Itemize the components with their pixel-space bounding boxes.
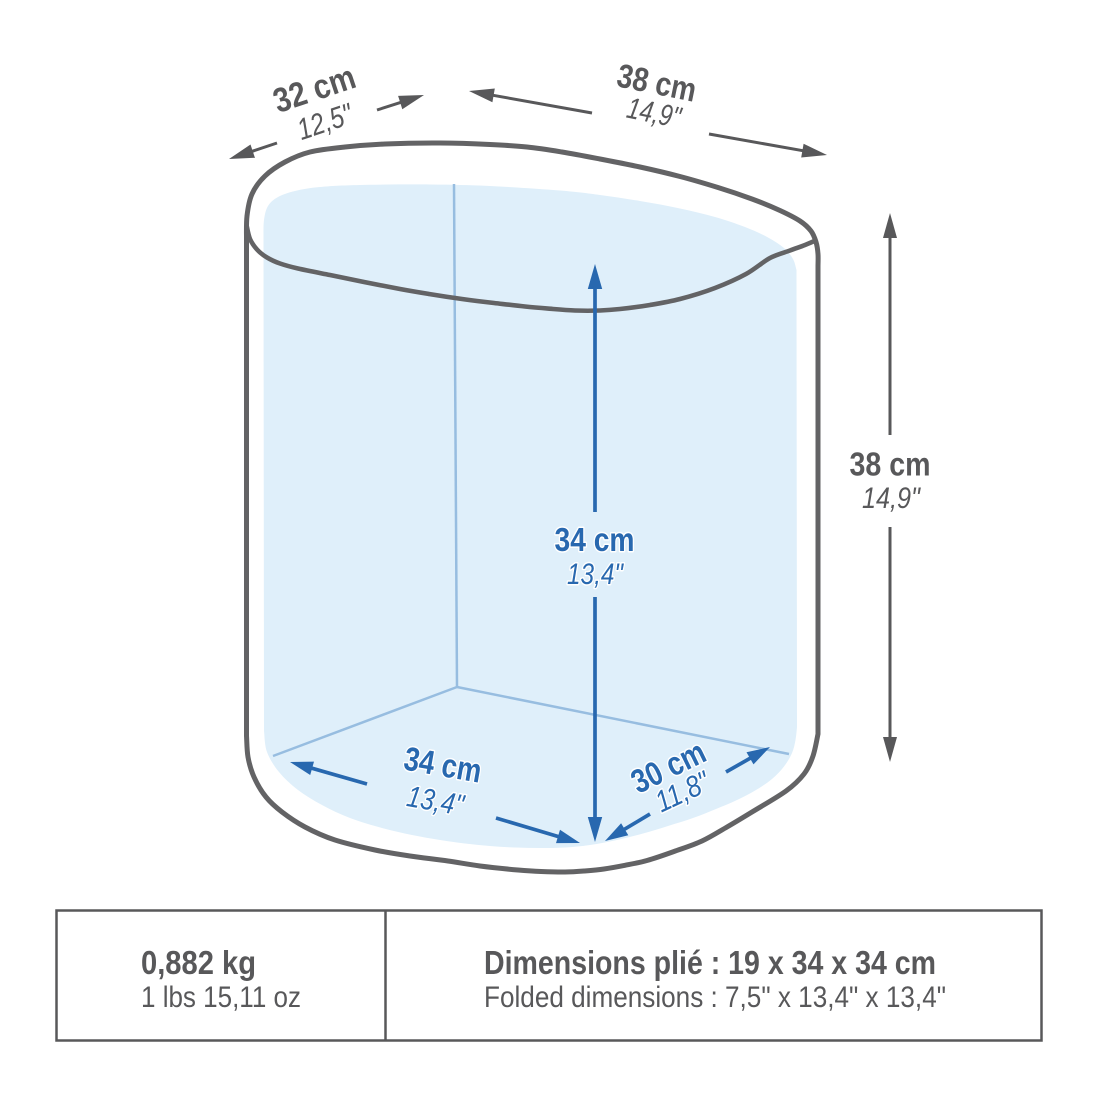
svg-text:Folded dimensions : 7,5" x 13,: Folded dimensions : 7,5" x 13,4" x 13,4" — [484, 981, 946, 1014]
svg-text:1 lbs 15,11 oz: 1 lbs 15,11 oz — [141, 981, 301, 1014]
svg-text:13,4": 13,4" — [567, 558, 624, 591]
svg-text:0,882 kg: 0,882 kg — [141, 945, 256, 982]
svg-text:34 cm: 34 cm — [555, 522, 635, 559]
svg-text:Dimensions plié : 19 x 34 x 34: Dimensions plié : 19 x 34 x 34 cm — [484, 945, 936, 982]
svg-text:14,9": 14,9" — [862, 482, 921, 515]
svg-text:38 cm: 38 cm — [850, 447, 931, 484]
